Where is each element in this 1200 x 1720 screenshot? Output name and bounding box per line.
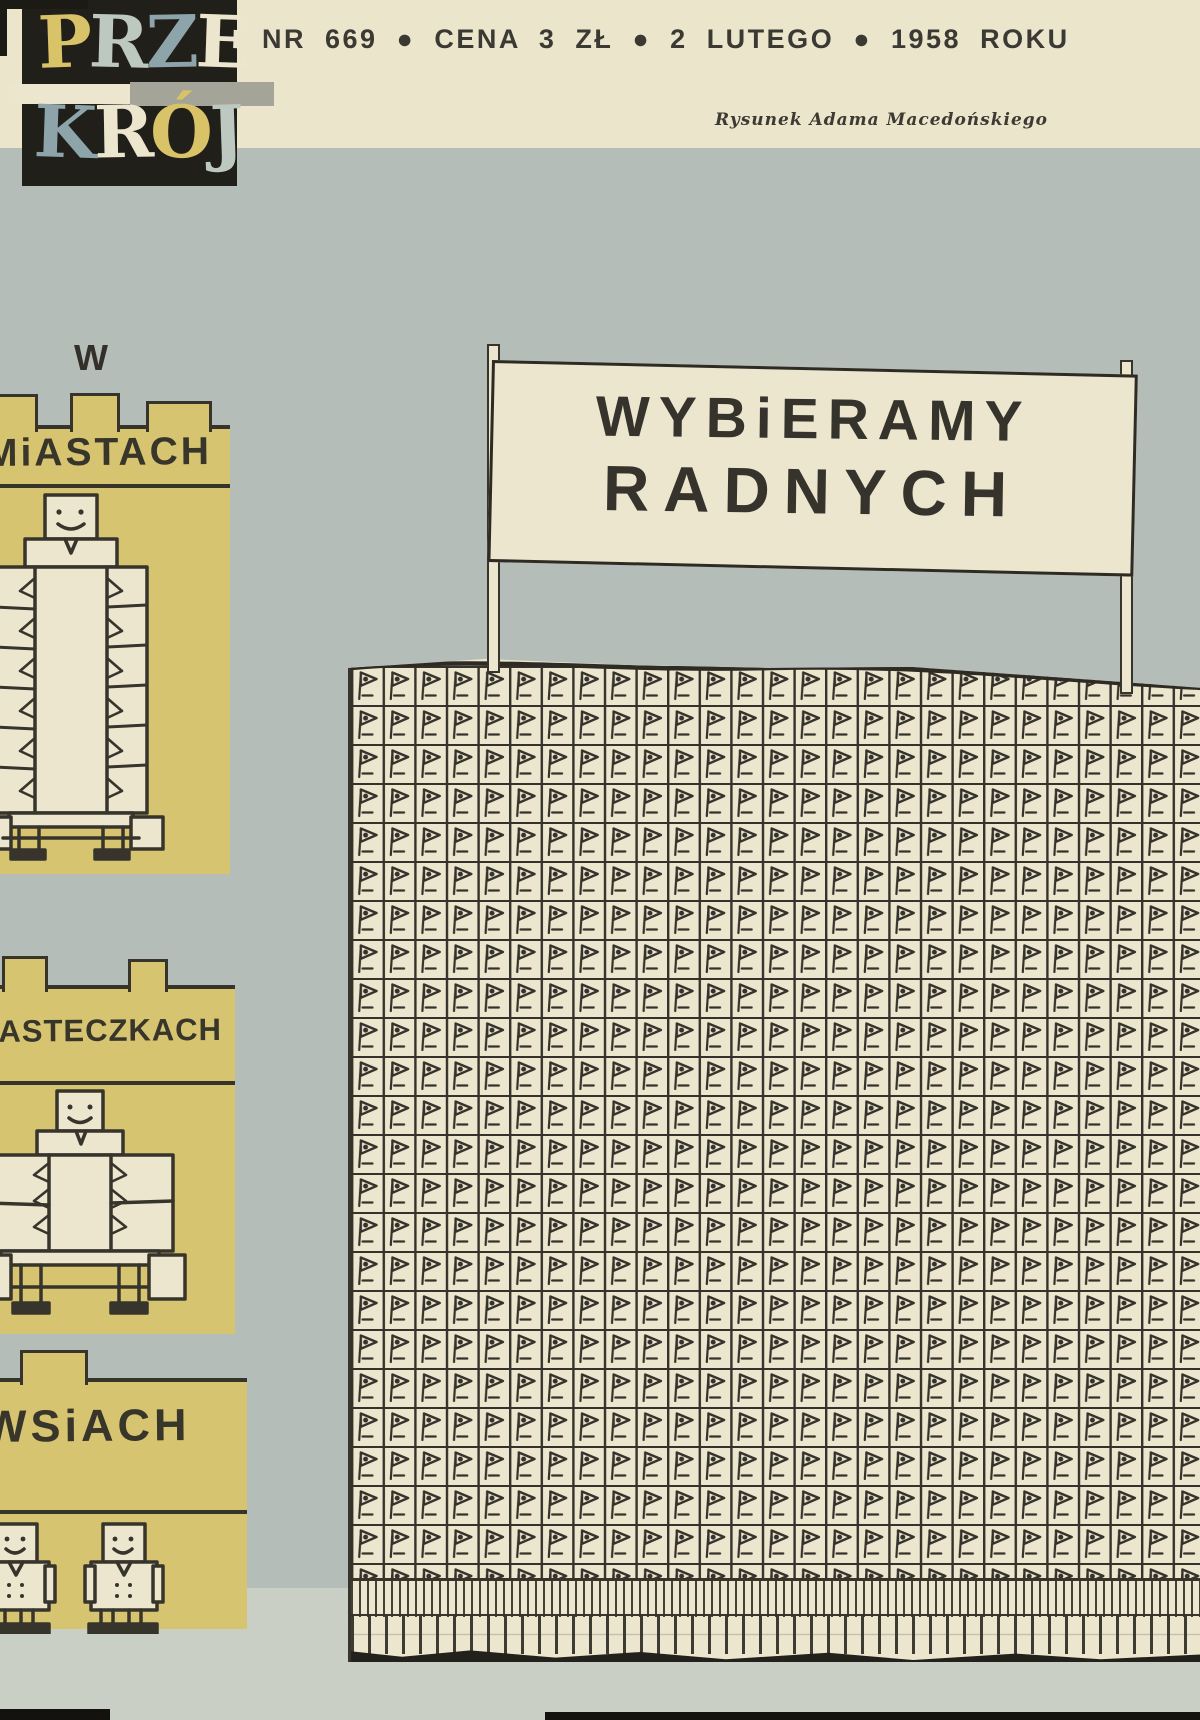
logo-word-prze: PRZE xyxy=(38,6,247,78)
bottom-edge-bar-left xyxy=(0,1709,110,1720)
chimney xyxy=(70,393,120,432)
building-village: WSiACH xyxy=(0,1378,247,1629)
issue-line: NR 669 ● CENA 3 ZŁ ● 2 LUTEGO ● 1958 ROK… xyxy=(262,24,1070,55)
building-village-label: WSiACH xyxy=(0,1399,191,1453)
label-w-prefix: W xyxy=(74,337,108,379)
building-town-label: MiASTECZKACH xyxy=(0,1012,222,1050)
facade-rule xyxy=(0,1081,235,1085)
chimney xyxy=(20,1350,88,1385)
scan-edge-artifact xyxy=(0,0,7,56)
facade-rule xyxy=(0,484,230,488)
logo-letter: P xyxy=(37,5,91,79)
logo-letter: K xyxy=(33,95,95,169)
flag-windows-pattern xyxy=(351,666,1200,1578)
house-person-illustration xyxy=(0,1089,188,1324)
logo-letter: R xyxy=(93,96,151,169)
tower-person-illustration xyxy=(0,492,173,864)
illustration-credit: Rysunek Adama Macedońskiego xyxy=(715,110,1048,130)
scan-edge-artifact xyxy=(0,0,88,9)
logo-letter: R xyxy=(88,5,147,78)
chimney xyxy=(146,401,212,432)
logo-word-kroj: KRÓJ xyxy=(34,96,241,168)
logo-letter: J xyxy=(209,95,243,168)
bottom-edge-bar xyxy=(545,1712,1200,1720)
facade-rule xyxy=(0,1510,247,1514)
building-city-label: MiASTACH xyxy=(0,430,212,476)
logo-letter: E xyxy=(194,5,248,79)
ground-floor-fringe xyxy=(351,1578,1200,1617)
building-city: W MiASTACH xyxy=(0,425,230,874)
banner-line1: WYBiERAMY xyxy=(493,382,1134,456)
ground-floor-entrances xyxy=(351,1614,1200,1654)
building-top-edge xyxy=(351,652,1200,696)
banner-line2: RADNYCH xyxy=(492,449,1133,533)
flag-building xyxy=(348,652,1200,1662)
chimney xyxy=(2,956,48,992)
logo-letter: Z xyxy=(145,6,196,79)
election-banner: WYBiERAMY RADNYCH xyxy=(487,360,1137,577)
building-town: MiASTECZKACH xyxy=(0,985,235,1334)
przekroj-logo: PRZE KRÓJ xyxy=(22,0,237,186)
magazine-cover: { "publication": { "logo_letters1": ["P"… xyxy=(0,0,1200,1720)
chimney xyxy=(128,959,168,992)
chimney xyxy=(0,394,38,432)
villagers-illustration xyxy=(0,1522,187,1634)
logo-letter: Ó xyxy=(150,95,211,168)
